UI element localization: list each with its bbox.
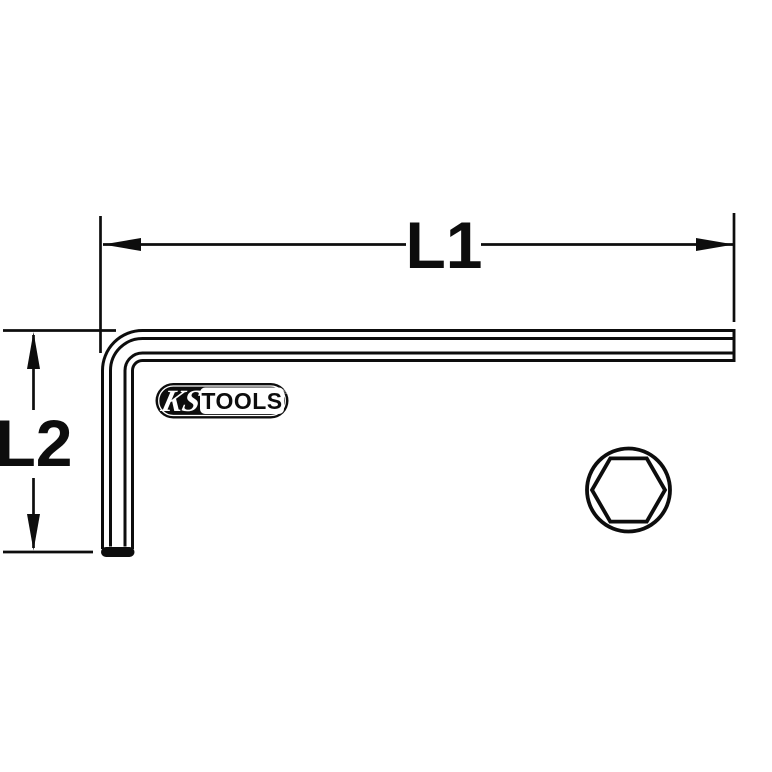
hex-cross-section-hexagon xyxy=(592,458,665,521)
l1-arrowhead-right xyxy=(696,238,734,251)
ks-tools-logo: KS TOOLS ® xyxy=(156,383,290,419)
hex-cross-section xyxy=(587,449,670,532)
logo-registered-mark: ® xyxy=(283,387,289,396)
logo-tools-text: TOOLS xyxy=(201,388,282,414)
hex-key-bottom-tip xyxy=(101,547,135,557)
dimension-l2: L2 xyxy=(0,331,116,553)
l1-label: L1 xyxy=(405,208,482,282)
l2-arrowhead-up xyxy=(27,332,40,369)
hex-key-facet-line-1 xyxy=(111,339,734,547)
l2-label: L2 xyxy=(0,406,73,480)
product-drawing-canvas: L1 L2 xyxy=(0,0,772,772)
hex-key-technical-drawing: L1 L2 xyxy=(0,0,772,772)
hex-key-outer-outline xyxy=(103,331,735,550)
l2-arrowhead-down xyxy=(27,514,40,551)
l1-arrowhead-left xyxy=(103,238,141,251)
hex-cross-section-circle xyxy=(587,449,670,532)
